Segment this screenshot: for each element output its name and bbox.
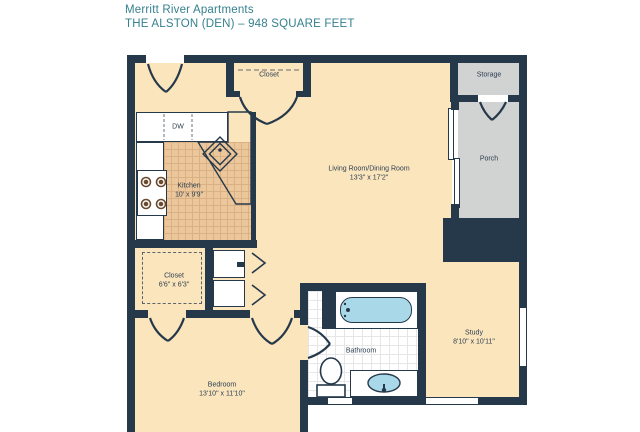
- wall-top-main: [184, 55, 527, 63]
- slider-panel-1: [448, 108, 454, 160]
- wall-closet-partition: [205, 248, 213, 310]
- wall-kitchen-thin: [251, 112, 256, 240]
- stove: [137, 170, 167, 216]
- wall-bath-bottom-b: [352, 397, 426, 405]
- dishwasher-label: DW: [172, 124, 184, 133]
- plan-title: THE ALSTON (DEN) – 948 SQUARE FEET: [125, 18, 355, 30]
- entry-closet-label: Closet: [259, 72, 279, 81]
- bedroom-label: Bedroom 13'10" x 11'10": [199, 381, 245, 399]
- wall-bedroom-top-right: [294, 310, 308, 318]
- wall-entry-closet-bottom-a: [226, 91, 240, 97]
- bedroom-name: Bedroom: [199, 381, 245, 390]
- property-name: Merritt River Apartments: [125, 4, 254, 16]
- slider-panel-2: [454, 158, 460, 208]
- study-window-right: [519, 308, 527, 366]
- wall-right-upper: [519, 55, 527, 222]
- study-dims: 8'10" x 10'11": [453, 338, 495, 347]
- study-window-bottom: [426, 397, 478, 405]
- wall-bedroom-top-mid: [186, 310, 250, 318]
- wall-study-bottom: [478, 397, 527, 405]
- wall-storage-bottom-a: [450, 95, 478, 102]
- wall-bedroom-top-left: [127, 310, 148, 318]
- wall-block-porch-study: [443, 218, 527, 262]
- wall-kitchen-bottom: [127, 240, 257, 248]
- bathtub: [340, 297, 412, 323]
- wall-bath-top: [300, 283, 426, 291]
- kitchen-dims: 10' x 9'9": [175, 191, 203, 200]
- kitchen-name: Kitchen: [175, 182, 203, 191]
- bedroom-closet-label: Closet 6'6" x 6'3": [159, 272, 190, 290]
- bedroom-closet-name: Closet: [159, 272, 190, 281]
- wall-entry-closet-bottom-b: [296, 91, 311, 97]
- wall-bath-bottom-a: [300, 397, 328, 405]
- wall-bath-right: [418, 291, 426, 405]
- bedroom-dims: 13'10" x 11'10": [199, 390, 245, 399]
- kitchen-label: Kitchen 10' x 9'9": [175, 182, 203, 200]
- bath-window-bottom: [328, 397, 352, 405]
- wall-bath-left-b: [300, 360, 308, 432]
- living-room-label: Living Room/Dining Room 13'3" x 17'2": [328, 165, 409, 183]
- wall-slider-stub-top: [451, 102, 459, 110]
- study-name: Study: [453, 329, 495, 338]
- floorplan-page: Merritt River Apartments THE ALSTON (DEN…: [0, 0, 640, 432]
- living-room-name: Living Room/Dining Room: [328, 165, 409, 174]
- vanity: [350, 370, 418, 397]
- dryer: [213, 280, 245, 307]
- living-room-dims: 13'3" x 17'2": [328, 174, 409, 183]
- wall-study-right-a: [519, 262, 527, 308]
- wall-bath-left-a: [300, 283, 308, 325]
- bathroom-label: Bathroom: [346, 348, 376, 357]
- bedroom-closet-dims: 6'6" x 6'3": [159, 281, 190, 290]
- storage-label: Storage: [477, 72, 502, 81]
- wall-storage-bottom-b: [508, 95, 527, 102]
- porch-label: Porch: [480, 156, 498, 165]
- study-label: Study 8'10" x 10'11": [453, 329, 495, 347]
- washer-control-panel: [237, 262, 244, 267]
- tub-wall-chunk: [322, 291, 336, 329]
